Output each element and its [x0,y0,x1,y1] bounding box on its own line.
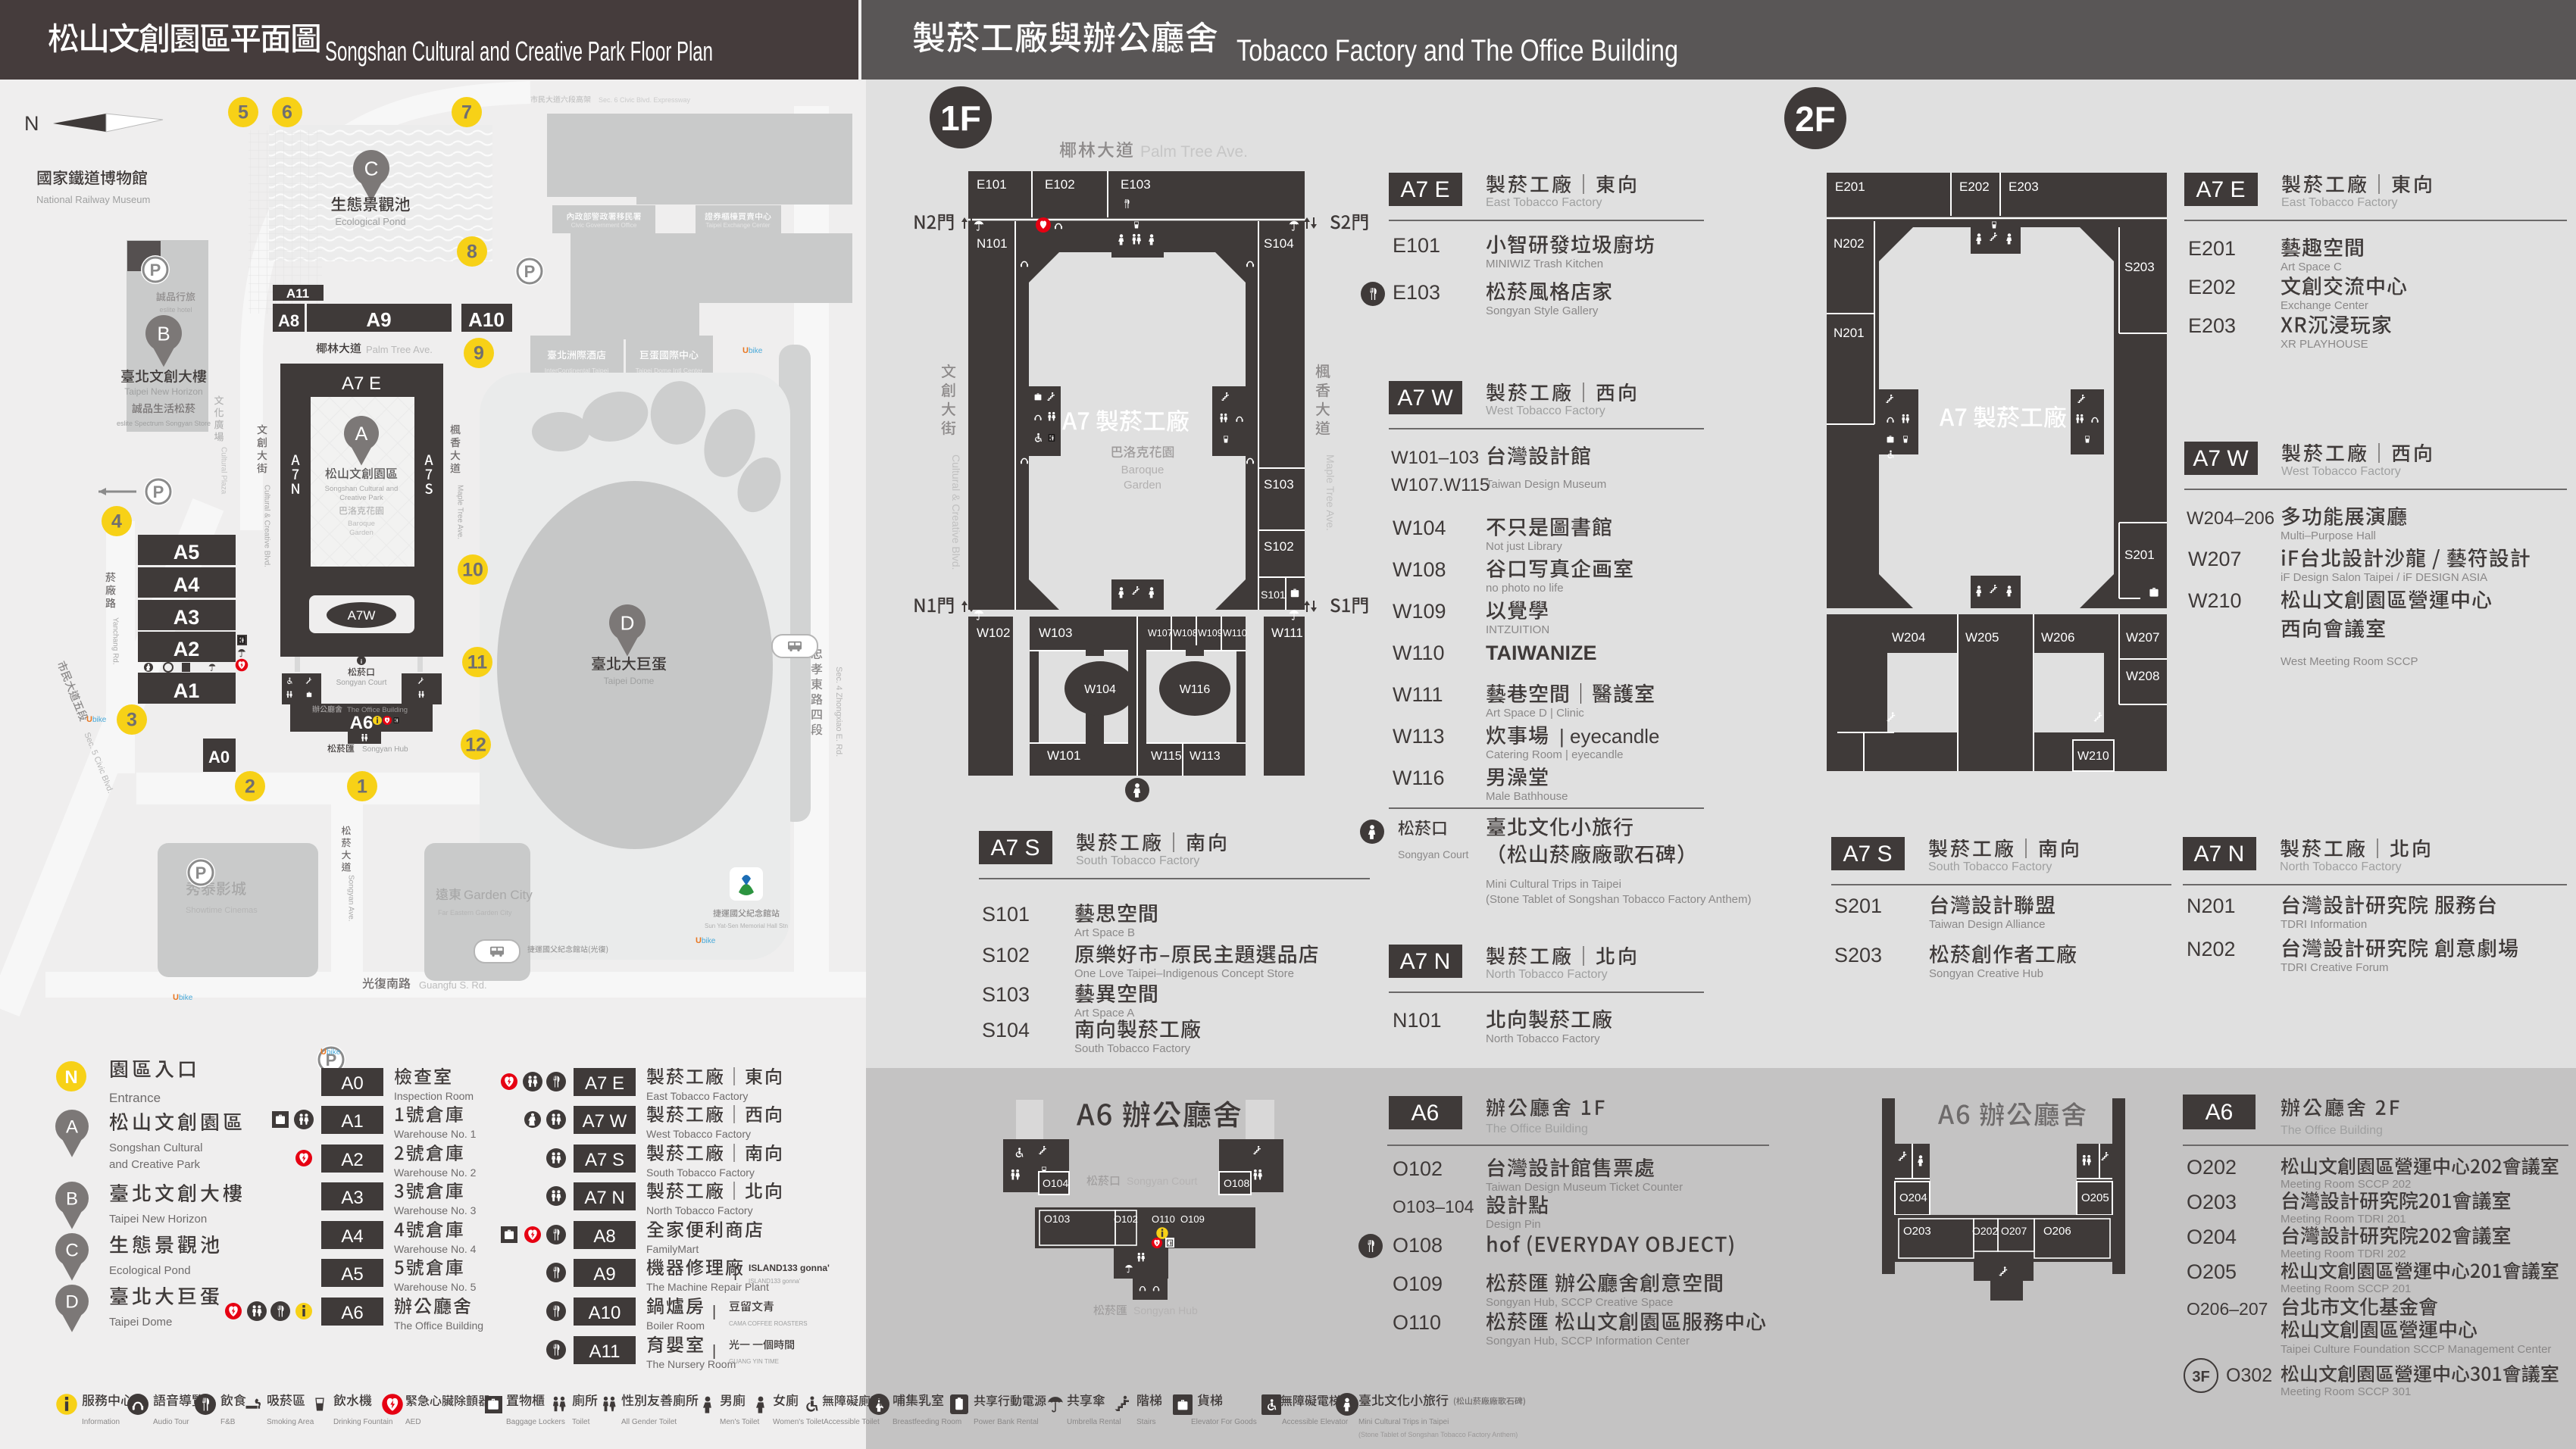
svg-text:Elevator For Goods: Elevator For Goods [1191,1418,1257,1426]
svg-text:W108: W108 [1393,558,1446,581]
svg-text:Art Space D | Clinic: Art Space D | Clinic [1486,707,1584,720]
svg-text:E202: E202 [2188,276,2236,298]
svg-text:ISLAND133 gonna': ISLAND133 gonna' [749,1263,830,1273]
svg-text:Taipei New Horizon: Taipei New Horizon [109,1213,207,1226]
svg-text:O109: O109 [1180,1213,1205,1225]
svg-text:B: B [66,1189,78,1210]
svg-text:North Tobacco Factory: North Tobacco Factory [1486,968,1608,981]
svg-text:W207: W207 [2188,548,2242,570]
svg-text:A5: A5 [341,1264,363,1285]
svg-text:All Gender Toilet: All Gender Toilet [621,1418,677,1426]
svg-text:A4: A4 [341,1226,363,1247]
svg-text:Multi–Purpose Hall: Multi–Purpose Hall [2281,529,2376,542]
svg-text:F&B: F&B [220,1418,236,1426]
svg-text:E203: E203 [2188,314,2236,337]
svg-text:S101: S101 [982,903,1030,926]
svg-text:Tobacco Factory and The Office: Tobacco Factory and The Office Building [1236,34,1678,67]
svg-text:O204: O204 [2187,1226,2237,1248]
svg-text:N101: N101 [1393,1009,1442,1032]
svg-text:Songshan Cultural and: Songshan Cultural and [325,485,399,493]
svg-text:S101: S101 [1261,589,1286,601]
svg-text:Taipei Dome: Taipei Dome [604,676,655,686]
svg-text:U: U [173,993,179,1002]
svg-text:O202: O202 [2187,1156,2237,1179]
svg-text:Creative Park: Creative Park [339,494,383,502]
svg-text:W103: W103 [1039,626,1072,640]
svg-text:3: 3 [127,710,137,731]
svg-text:N202: N202 [2187,938,2236,960]
svg-text:Taipei New Horizon: Taipei New Horizon [124,386,202,397]
svg-text:W204–206: W204–206 [2187,508,2274,529]
svg-text:C: C [65,1241,78,1261]
svg-text:Cultural & Creative Blvd.: Cultural & Creative Blvd. [263,485,271,567]
svg-text:U: U [742,346,749,355]
svg-text:W101: W101 [1047,748,1080,763]
svg-text:INTZUITION: INTZUITION [1486,623,1549,636]
svg-text:A4: A4 [174,573,200,596]
svg-text:W210: W210 [2077,750,2109,763]
svg-text:Art Space B: Art Space B [1074,926,1135,939]
svg-text:Accessible Toilet: Accessible Toilet [824,1418,880,1426]
svg-text:South Tobacco Factory: South Tobacco Factory [1074,1042,1191,1055]
svg-text:S102: S102 [982,944,1030,967]
svg-text:O204: O204 [1899,1191,1927,1204]
svg-text:North Tobacco Factory: North Tobacco Factory [646,1204,753,1216]
svg-text:Ecological Pond: Ecological Pond [335,216,405,227]
svg-text:ISLAND133 gonna': ISLAND133 gonna' [749,1278,801,1285]
svg-text:W210: W210 [2188,589,2242,612]
svg-text:O203: O203 [2187,1191,2237,1213]
svg-text:Sun Yat-Sen Memorial Hall Stn: Sun Yat-Sen Memorial Hall Stn [705,923,788,929]
svg-text:GUANG YIN TIME: GUANG YIN TIME [729,1358,779,1365]
svg-text:Smoking Area: Smoking Area [267,1418,314,1426]
svg-text:Entrance: Entrance [109,1091,161,1105]
svg-text:TDRI Creative Forum: TDRI Creative Forum [2281,961,2389,974]
svg-text:Not just Library: Not just Library [1486,540,1562,553]
svg-text:eslite hotel: eslite hotel [159,306,192,314]
svg-text:Baggage Lockers: Baggage Lockers [506,1418,565,1426]
svg-text:Art Space C: Art Space C [2281,261,2342,273]
svg-text:A6: A6 [2206,1100,2234,1125]
svg-text:North Tobacco Factory: North Tobacco Factory [2280,860,2402,873]
svg-text:Toilet: Toilet [572,1418,590,1426]
svg-text:Meeting Room SCCP 301: Meeting Room SCCP 301 [2281,1385,2411,1398]
svg-text:i: i [361,658,362,665]
svg-text:D: D [65,1292,78,1313]
svg-text:The Office Building: The Office Building [2281,1124,2383,1137]
svg-text:P: P [524,262,536,281]
svg-text:West Tobacco Factory: West Tobacco Factory [2281,465,2401,478]
svg-text:A10: A10 [468,308,505,331]
svg-text:A7 E: A7 E [1400,177,1449,202]
svg-text:A7 W: A7 W [2193,446,2249,471]
svg-text:O109: O109 [1393,1273,1443,1295]
svg-text:Baroque: Baroque [1121,464,1165,476]
svg-text:Ecological Pond: Ecological Pond [109,1264,191,1277]
svg-text:A0: A0 [208,748,230,767]
svg-text:S201: S201 [2124,548,2155,562]
svg-text:7: 7 [461,102,472,123]
svg-text:W109: W109 [1198,628,1223,639]
svg-text:The Office Building: The Office Building [1486,1123,1588,1135]
svg-text:11: 11 [467,652,488,673]
svg-text:Guangfu S. Rd.: Guangfu S. Rd. [419,979,487,991]
svg-text:P: P [150,261,161,279]
svg-text:N: N [24,112,39,135]
svg-text:A7 E: A7 E [342,373,381,394]
svg-text:P: P [195,863,207,882]
svg-text:E201: E201 [1835,180,1865,194]
svg-text:Power Bank Rental: Power Bank Rental [974,1418,1039,1426]
svg-text:Cultural Plaza: Cultural Plaza [220,447,228,495]
svg-text:N201: N201 [2187,895,2236,917]
svg-text:Songyan Hub, SCCP Information: Songyan Hub, SCCP Information Center [1486,1335,1690,1348]
svg-text:A11: A11 [286,286,309,301]
svg-text:Meeting Room TDRI 202: Meeting Room TDRI 202 [2281,1248,2406,1260]
svg-text:Baroque: Baroque [348,520,375,528]
svg-text:W116: W116 [1393,767,1445,789]
svg-text:Cultural & Creative Blvd.: Cultural & Creative Blvd. [950,454,962,570]
svg-text:Maple Tree Ave.: Maple Tree Ave. [1324,454,1336,531]
svg-text:Umbrella Rental: Umbrella Rental [1067,1418,1121,1426]
svg-text:A9: A9 [593,1264,615,1285]
svg-text:bike: bike [327,1048,341,1057]
svg-text:Exchange Center: Exchange Center [2281,299,2368,312]
svg-text:South Tobacco Factory: South Tobacco Factory [646,1166,755,1179]
svg-text:W206: W206 [2041,630,2074,645]
svg-text:E201: E201 [2188,237,2236,260]
svg-text:S103: S103 [982,983,1030,1006]
svg-text:W110: W110 [1223,628,1247,639]
svg-text:Sec. 6 Civic Blvd. Expressway: Sec. 6 Civic Blvd. Expressway [599,96,691,104]
svg-text:Yanchang Rd.: Yanchang Rd. [111,617,120,665]
svg-text:Meeting Room SCCP 201: Meeting Room SCCP 201 [2281,1282,2411,1295]
svg-text:East Tobacco Factory: East Tobacco Factory [2281,196,2398,209]
svg-text:Warehouse No. 1: Warehouse No. 1 [394,1128,477,1140]
svg-text:XR PLAYHOUSE: XR PLAYHOUSE [2281,338,2368,351]
svg-text:O206: O206 [2043,1225,2071,1238]
svg-text:B: B [157,322,170,345]
svg-text:O207: O207 [2001,1225,2027,1237]
svg-text:Songyan Court: Songyan Court [1127,1175,1198,1187]
svg-text:A7 S: A7 S [990,835,1039,860]
svg-text:Male Bathhouse: Male Bathhouse [1486,790,1568,803]
svg-text:Drinking Fountain: Drinking Fountain [333,1418,392,1426]
svg-text:W113: W113 [1393,725,1445,748]
svg-text:W116: W116 [1180,683,1211,696]
svg-text:Songyan Hub, SCCP Creative Spa: Songyan Hub, SCCP Creative Space [1486,1296,1673,1309]
svg-text:3F: 3F [2192,1369,2209,1385]
svg-text:O103: O103 [1044,1213,1070,1225]
svg-text:TAIWANIZE: TAIWANIZE [1486,642,1596,664]
svg-text:A7 S: A7 S [1843,842,1892,867]
svg-text:AED: AED [405,1418,421,1426]
svg-text:Taiwan Design Alliance: Taiwan Design Alliance [1929,918,2045,931]
svg-text:W107: W107 [1148,628,1173,639]
svg-text:Garden: Garden [1124,479,1161,492]
svg-text:bike: bike [749,347,763,355]
svg-text:|: | [712,1304,716,1320]
svg-text:One Love Taipei–Indigenous Con: One Love Taipei–Indigenous Concept Store [1074,967,1294,980]
svg-text:2F: 2F [1795,99,1836,139]
svg-text:12: 12 [465,735,486,756]
svg-text:TDRI Information: TDRI Information [2281,918,2367,931]
svg-text:O206–207: O206–207 [2187,1299,2268,1319]
svg-text:A: A [66,1117,78,1138]
svg-text:Songyan Creative Hub: Songyan Creative Hub [1929,967,2043,980]
svg-text:A6: A6 [350,713,374,733]
svg-text:E202: E202 [1959,180,1990,194]
svg-text:Warehouse No. 5: Warehouse No. 5 [394,1281,477,1293]
svg-text:and Creative Park: and Creative Park [109,1158,201,1171]
svg-text:10: 10 [462,560,483,581]
svg-text:S103: S103 [1264,477,1294,492]
svg-text:A11: A11 [589,1341,621,1362]
svg-text:O103–104: O103–104 [1393,1197,1474,1216]
svg-text:|: | [733,1264,737,1281]
svg-text:Taipei Dome: Taipei Dome [109,1316,172,1329]
svg-text:N: N [64,1067,77,1088]
svg-text:South Tobacco Factory: South Tobacco Factory [1928,860,2052,873]
svg-text:8: 8 [467,242,477,263]
svg-text:Garden: Garden [349,529,374,537]
svg-text:O203: O203 [1903,1225,1931,1238]
svg-text:A1: A1 [341,1111,363,1132]
svg-text:West Tobacco Factory: West Tobacco Factory [646,1128,751,1140]
svg-text:Taiwan Design Museum: Taiwan Design Museum [1486,478,1606,491]
svg-text:A10: A10 [589,1303,621,1323]
svg-text:Sec. 4 Zhongxiao E. Rd.: Sec. 4 Zhongxiao E. Rd. [834,667,843,757]
svg-text:A: A [355,423,368,445]
svg-text:Maple Tree Ave.: Maple Tree Ave. [456,485,464,539]
svg-text:Inspection Room: Inspection Room [394,1090,474,1102]
svg-text:Garden City: Garden City [464,888,533,902]
svg-text:A7 W: A7 W [583,1111,627,1132]
svg-text:eslite Spectrum Songyan Store: eslite Spectrum Songyan Store [117,420,211,427]
svg-text:Warehouse No. 3: Warehouse No. 3 [394,1204,477,1216]
svg-text:2: 2 [245,776,255,798]
svg-text:A8: A8 [593,1226,615,1247]
svg-text:A7 N: A7 N [584,1188,624,1208]
svg-text:E101: E101 [1393,234,1440,257]
svg-text:(Stone Tablet of Songshan Toba: (Stone Tablet of Songshan Tobacco Factor… [1486,893,1752,906]
svg-text:Taipei Culture Foundation SCCP: Taipei Culture Foundation SCCP Managemen… [2281,1343,2551,1356]
svg-text:O102: O102 [1114,1213,1138,1225]
svg-text:Men's Toilet: Men's Toilet [720,1418,760,1426]
svg-text:West Meeting Room SCCP: West Meeting Room SCCP [2281,655,2418,668]
svg-text:FamilyMart: FamilyMart [646,1243,699,1255]
svg-text:E103: E103 [1121,177,1151,192]
svg-text:W205: W205 [1965,630,1999,645]
svg-text:Meeting Room SCCP 202: Meeting Room SCCP 202 [2281,1178,2411,1191]
svg-text:S102: S102 [1264,539,1294,554]
svg-text:W111: W111 [1271,626,1303,640]
svg-text:Songshan Cultural: Songshan Cultural [109,1141,202,1154]
svg-text:Palm Tree Ave.: Palm Tree Ave. [366,344,433,355]
svg-text:no photo no life: no photo no life [1486,582,1564,595]
svg-text:CAMA COFFEE ROASTERS: CAMA COFFEE ROASTERS [729,1320,808,1327]
svg-text:bike: bike [702,937,716,945]
svg-text:bike: bike [179,994,193,1002]
svg-text:Songyan Hub: Songyan Hub [362,745,408,754]
svg-text:North Tobacco Factory: North Tobacco Factory [1486,1032,1600,1045]
svg-text:O110: O110 [1393,1311,1441,1334]
svg-text:U: U [86,715,92,724]
svg-text:N101: N101 [977,236,1008,251]
svg-text:O108: O108 [1393,1234,1443,1257]
svg-text:W108: W108 [1173,628,1198,639]
svg-text:O205: O205 [2081,1191,2109,1204]
svg-text:Catering Room | eyecandle: Catering Room | eyecandle [1486,748,1624,761]
svg-text:National Railway Museum: National Railway Museum [36,194,150,205]
svg-text:MINIWIZ Trash Kitchen: MINIWIZ Trash Kitchen [1486,258,1603,270]
svg-text:W109: W109 [1393,600,1446,623]
svg-text:A6: A6 [341,1303,363,1323]
svg-text:A7 W: A7 W [1397,386,1453,411]
svg-text:Showtime Cinemas: Showtime Cinemas [186,906,258,915]
svg-text:| eyecandle: | eyecandle [1559,725,1660,748]
svg-text:O302: O302 [2226,1365,2272,1386]
svg-text:A2: A2 [341,1150,363,1170]
svg-text:O202: O202 [1972,1225,1998,1237]
svg-text:Art Space A: Art Space A [1074,1007,1134,1020]
svg-text:A3: A3 [174,606,200,629]
svg-text:O102: O102 [1393,1157,1443,1180]
svg-text:S201: S201 [1834,895,1882,917]
svg-text:O205: O205 [2187,1260,2237,1283]
svg-text:Civic Government Office: Civic Government Office [571,222,637,229]
svg-text:S203: S203 [1834,944,1882,967]
svg-text:Songyan Hub: Songyan Hub [1133,1304,1198,1316]
svg-text:O108: O108 [1224,1177,1249,1189]
svg-text:P: P [153,482,164,501]
svg-text:A7 E: A7 E [2196,177,2245,202]
svg-text:D: D [621,611,635,634]
svg-text:East Tobacco Factory: East Tobacco Factory [646,1090,748,1102]
svg-text:W204: W204 [1892,630,1925,645]
svg-text:A7W: A7W [348,608,376,623]
svg-text:Songyan Style Gallery: Songyan Style Gallery [1486,304,1599,317]
svg-text:E103: E103 [1393,281,1440,304]
svg-text:W104: W104 [1084,683,1116,696]
svg-text:bike: bike [92,716,107,724]
svg-text:C: C [364,157,379,180]
svg-text:Mini Cultural Trips in Taipei: Mini Cultural Trips in Taipei [1358,1418,1449,1426]
svg-text:Songyan Ave.: Songyan Ave. [347,875,355,922]
svg-text:Audio Tour: Audio Tour [153,1418,189,1426]
svg-text:A1: A1 [174,679,200,702]
svg-text:W113: W113 [1190,750,1221,763]
svg-text:Mini Cultural Trips in Taipei: Mini Cultural Trips in Taipei [1486,878,1621,891]
svg-text:Boiler Room: Boiler Room [646,1319,705,1332]
svg-text:The Nursery Room: The Nursery Room [646,1358,736,1370]
svg-text:1: 1 [357,776,367,798]
svg-text:U: U [696,936,702,945]
svg-text:A7 N: A7 N [1400,949,1451,974]
svg-text:W208: W208 [2126,669,2159,683]
svg-text:4: 4 [111,511,122,532]
svg-text:Information: Information [82,1418,120,1426]
svg-text:A7 N: A7 N [2194,842,2245,867]
svg-text:N202: N202 [1834,236,1865,251]
svg-text:6: 6 [282,102,292,123]
svg-text:W115: W115 [1151,750,1182,763]
svg-text:A8: A8 [278,311,299,330]
svg-text:A7 S: A7 S [585,1150,624,1170]
svg-text:A7 E: A7 E [585,1073,624,1094]
svg-text:N201: N201 [1834,326,1865,340]
svg-text:W102: W102 [977,626,1010,640]
svg-text:A3: A3 [341,1188,363,1208]
svg-text:Accessible Elevator: Accessible Elevator [1282,1418,1349,1426]
svg-text:A5: A5 [174,541,200,564]
svg-text:W101–103: W101–103 [1391,448,1479,468]
svg-text:Warehouse No. 2: Warehouse No. 2 [394,1166,477,1179]
svg-text:Warehouse No. 4: Warehouse No. 4 [394,1243,477,1255]
svg-text:Songyan Court: Songyan Court [336,679,387,687]
svg-text:W111: W111 [1393,683,1443,706]
svg-text:Taipei Exchange Center: Taipei Exchange Center [706,222,771,229]
svg-text:Songyan Court: Songyan Court [1398,848,1469,860]
svg-text:A6: A6 [1411,1101,1440,1126]
svg-text:1F: 1F [940,98,981,138]
svg-text:Taiwan Design Museum Ticket Co: Taiwan Design Museum Ticket Counter [1486,1181,1683,1194]
svg-text:A2: A2 [174,638,200,660]
svg-text:S104: S104 [1264,236,1294,251]
svg-text:Far Eastern Garden City: Far Eastern Garden City [438,909,512,917]
svg-text:E203: E203 [2009,180,2039,194]
svg-text:|: | [712,1343,716,1360]
svg-text:W107.W115: W107.W115 [1391,475,1490,495]
svg-text:Meeting Room TDRI 201: Meeting Room TDRI 201 [2281,1213,2406,1226]
svg-text:Stairs: Stairs [1136,1418,1156,1426]
svg-text:O110: O110 [1152,1213,1175,1225]
svg-text:Palm Tree Ave.: Palm Tree Ave. [1140,143,1248,161]
svg-text:A9: A9 [366,308,391,331]
svg-text:East Tobacco Factory: East Tobacco Factory [1486,196,1602,209]
svg-text:O104: O104 [1043,1177,1068,1189]
svg-text:S203: S203 [2124,260,2155,274]
svg-text:Design Pin: Design Pin [1486,1218,1541,1231]
svg-text:Breastfeeding Room: Breastfeeding Room [893,1418,961,1426]
svg-text:S104: S104 [982,1019,1030,1041]
svg-text:A0: A0 [341,1073,363,1094]
svg-text:5: 5 [238,102,249,123]
svg-text:The Office Building: The Office Building [394,1319,483,1332]
svg-text:E101: E101 [977,177,1007,192]
svg-text:Women's Toilet: Women's Toilet [773,1418,824,1426]
svg-text:South Tobacco Factory: South Tobacco Factory [1076,854,1199,867]
svg-text:iF Design Salon Taipei / iF DE: iF Design Salon Taipei / iF DESIGN ASIA [2281,571,2487,584]
svg-text:W104: W104 [1393,517,1446,539]
svg-text:E102: E102 [1045,177,1075,192]
svg-text:W207: W207 [2126,630,2159,645]
svg-text:Songshan Cultural and Creative: Songshan Cultural and Creative Park Floo… [325,36,713,67]
svg-text:9: 9 [474,343,484,364]
svg-text:W110: W110 [1393,642,1445,664]
svg-text:(Stone Tablet of Songshan Toba: (Stone Tablet of Songshan Tobacco Factor… [1358,1431,1518,1438]
svg-text:U: U [320,1048,327,1057]
svg-text:West Tobacco Factory: West Tobacco Factory [1486,404,1605,417]
